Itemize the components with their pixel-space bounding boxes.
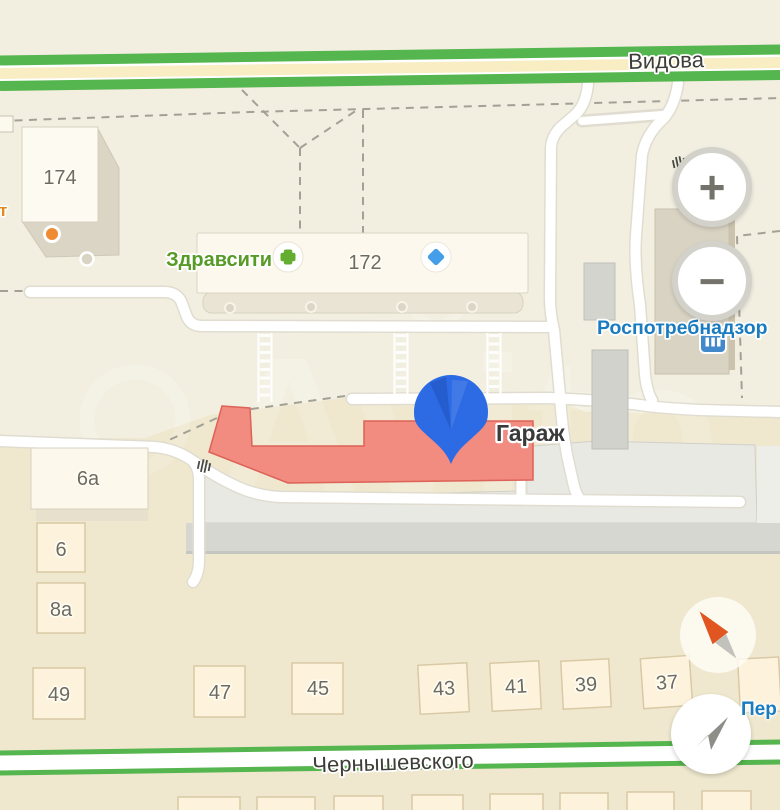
building-39: 39 <box>561 659 611 709</box>
garage-label[interactable]: Гараж <box>496 420 565 446</box>
rospotrebnadzor-label[interactable]: Роспотребнадзор <box>597 317 768 339</box>
locate-me-button[interactable] <box>671 694 751 774</box>
svg-text:49: 49 <box>48 684 70 706</box>
svg-text:45: 45 <box>307 678 329 700</box>
orange-poi-dot[interactable] <box>45 227 60 242</box>
map-canvas[interactable]: Avito <box>0 0 780 810</box>
building-49: 49 <box>33 668 85 719</box>
building-gray-lower <box>592 350 628 449</box>
diamond-poi[interactable] <box>421 242 451 272</box>
building-sliver-left <box>0 116 13 132</box>
building-43: 43 <box>418 663 469 714</box>
gray-poi-dot <box>81 253 94 266</box>
building-8a: 8а <box>37 583 85 633</box>
building-6a-label: 6а <box>77 468 100 490</box>
svg-text:47: 47 <box>209 682 231 704</box>
cut-poi-label: т <box>0 201 7 220</box>
building-172-label: 172 <box>348 252 381 274</box>
street-chernyshevskogo-label: Чернышевского <box>312 748 474 778</box>
zoom-in-glyph: + <box>699 164 726 210</box>
building-gray-upper <box>584 263 615 320</box>
pharmacy-poi[interactable] <box>273 242 303 272</box>
navigation-arrow-icon <box>671 694 751 774</box>
zdravsiti-label[interactable]: Здравсити <box>166 249 272 271</box>
building-45: 45 <box>292 663 343 714</box>
building-174: 174 <box>22 127 119 257</box>
zoom-out-button[interactable]: − <box>672 241 752 321</box>
compass-button[interactable] <box>680 597 756 673</box>
svg-text:43: 43 <box>432 677 455 700</box>
svg-text:37: 37 <box>655 671 679 694</box>
building-174-label: 174 <box>43 167 76 189</box>
zoom-in-button[interactable]: + <box>672 147 752 227</box>
street-vidova-label: Видова <box>628 47 705 74</box>
svg-text:8а: 8а <box>50 599 73 621</box>
building-47: 47 <box>194 666 245 717</box>
svg-text:6: 6 <box>55 539 66 561</box>
building-172: 172 <box>197 233 528 313</box>
per-street-label: Пер <box>741 699 777 721</box>
building-41: 41 <box>490 661 541 711</box>
building-6: 6 <box>37 523 85 572</box>
building-6a: 6а <box>31 448 148 521</box>
svg-text:39: 39 <box>574 673 597 696</box>
compass-needle-icon <box>680 597 756 673</box>
map-viewport: Avito <box>0 0 780 810</box>
zoom-out-glyph: − <box>699 258 726 304</box>
svg-text:41: 41 <box>504 675 527 698</box>
